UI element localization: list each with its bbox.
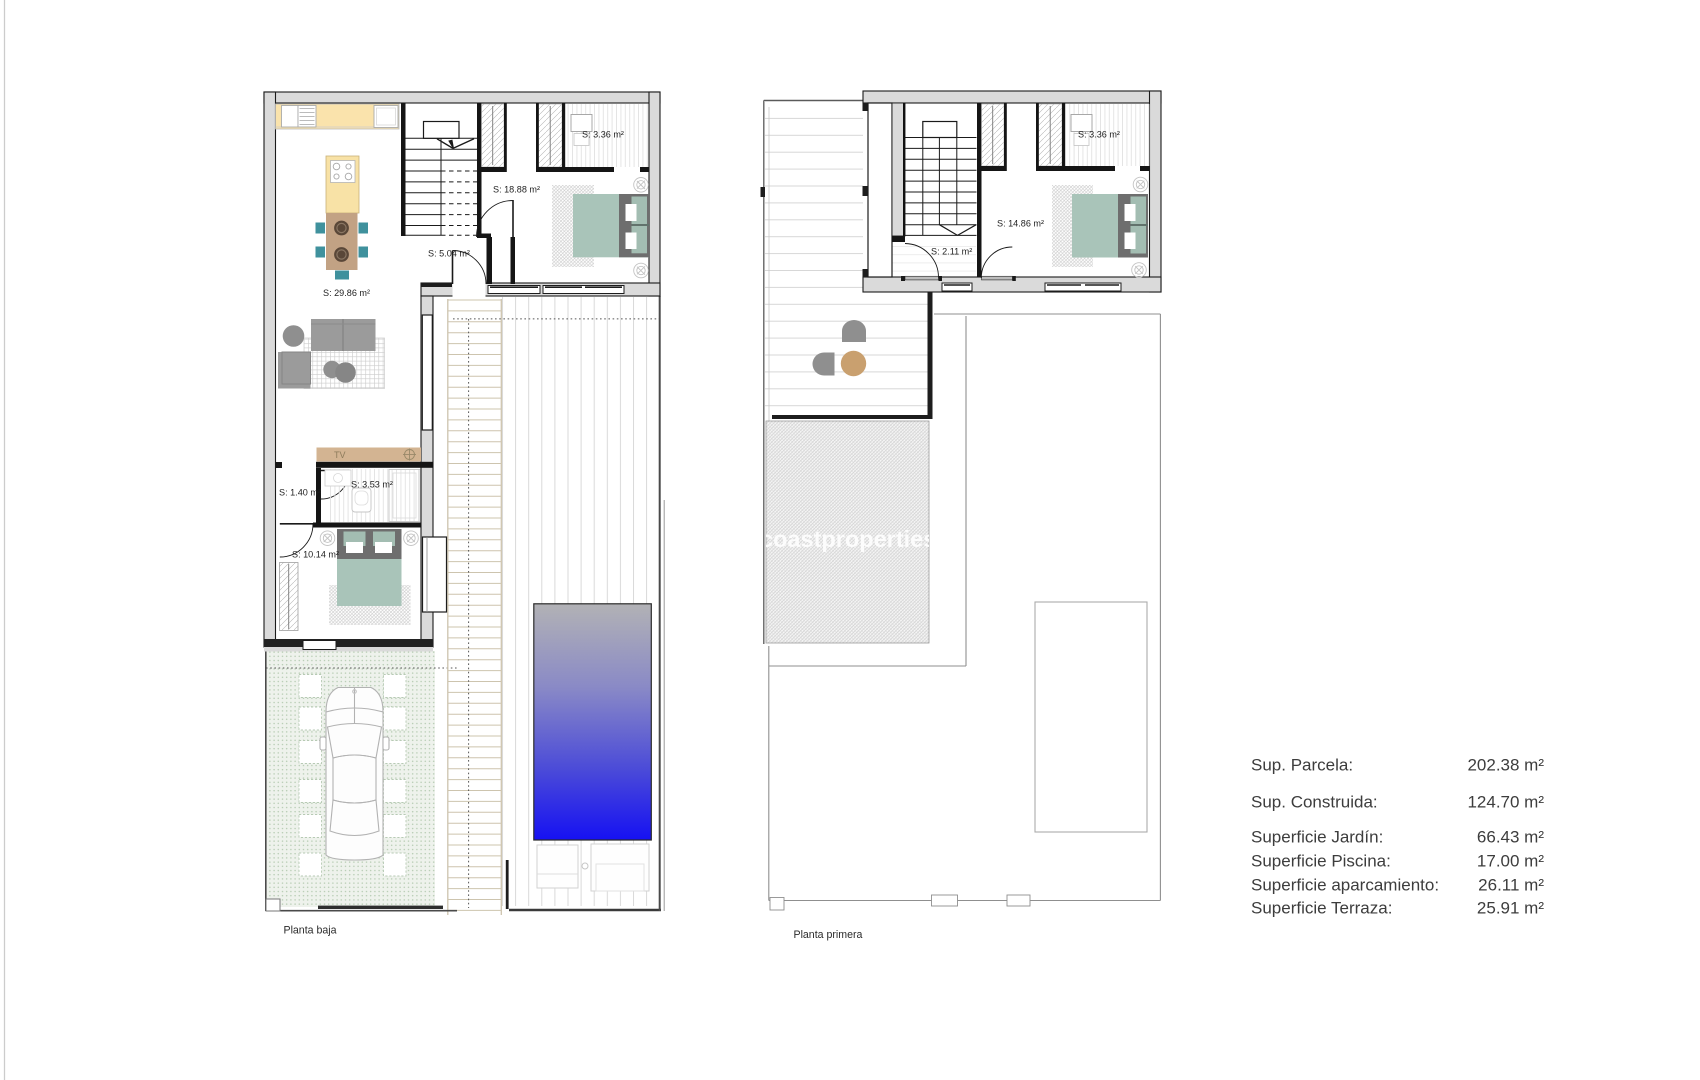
svg-text:Planta primera: Planta primera <box>794 929 863 941</box>
svg-text:S: 3.53 m²: S: 3.53 m² <box>351 480 393 490</box>
svg-text:TV: TV <box>334 450 346 460</box>
svg-text:17.00 m²: 17.00 m² <box>1477 852 1544 871</box>
svg-text:S: 2.11 m²: S: 2.11 m² <box>931 247 972 257</box>
svg-text:Superficie Piscina:: Superficie Piscina: <box>1251 852 1391 871</box>
svg-text:202.38 m²: 202.38 m² <box>1467 756 1544 775</box>
svg-text:S: 5.04 m²: S: 5.04 m² <box>428 249 470 259</box>
svg-text:S: 3.36 m²: S: 3.36 m² <box>1078 130 1120 140</box>
svg-text:Sup. Construida:: Sup. Construida: <box>1251 793 1378 812</box>
svg-text:26.11 m²: 26.11 m² <box>1478 876 1544 895</box>
svg-text:Sup. Parcela:: Sup. Parcela: <box>1251 756 1353 775</box>
svg-text:S: 14.86 m²: S: 14.86 m² <box>997 219 1044 229</box>
svg-text:Superficie Jardín:: Superficie Jardín: <box>1251 828 1383 847</box>
svg-text:coastproperties: coastproperties <box>760 526 936 552</box>
svg-text:Superficie Terraza:: Superficie Terraza: <box>1251 899 1392 918</box>
svg-text:25.91 m²: 25.91 m² <box>1477 899 1544 918</box>
svg-text:66.43 m²: 66.43 m² <box>1477 828 1544 847</box>
svg-text:124.70 m²: 124.70 m² <box>1467 793 1544 812</box>
svg-text:S: 10.14 m²: S: 10.14 m² <box>292 550 339 560</box>
svg-text:Planta baja: Planta baja <box>284 925 337 937</box>
svg-text:Superficie aparcamiento:: Superficie aparcamiento: <box>1251 876 1439 895</box>
svg-text:S: 3.36 m²: S: 3.36 m² <box>582 130 624 140</box>
svg-text:S: 18.88 m²: S: 18.88 m² <box>493 185 540 195</box>
svg-text:S: 1.40 m²: S: 1.40 m² <box>279 488 321 498</box>
svg-text:S: 29.86 m²: S: 29.86 m² <box>323 288 370 298</box>
